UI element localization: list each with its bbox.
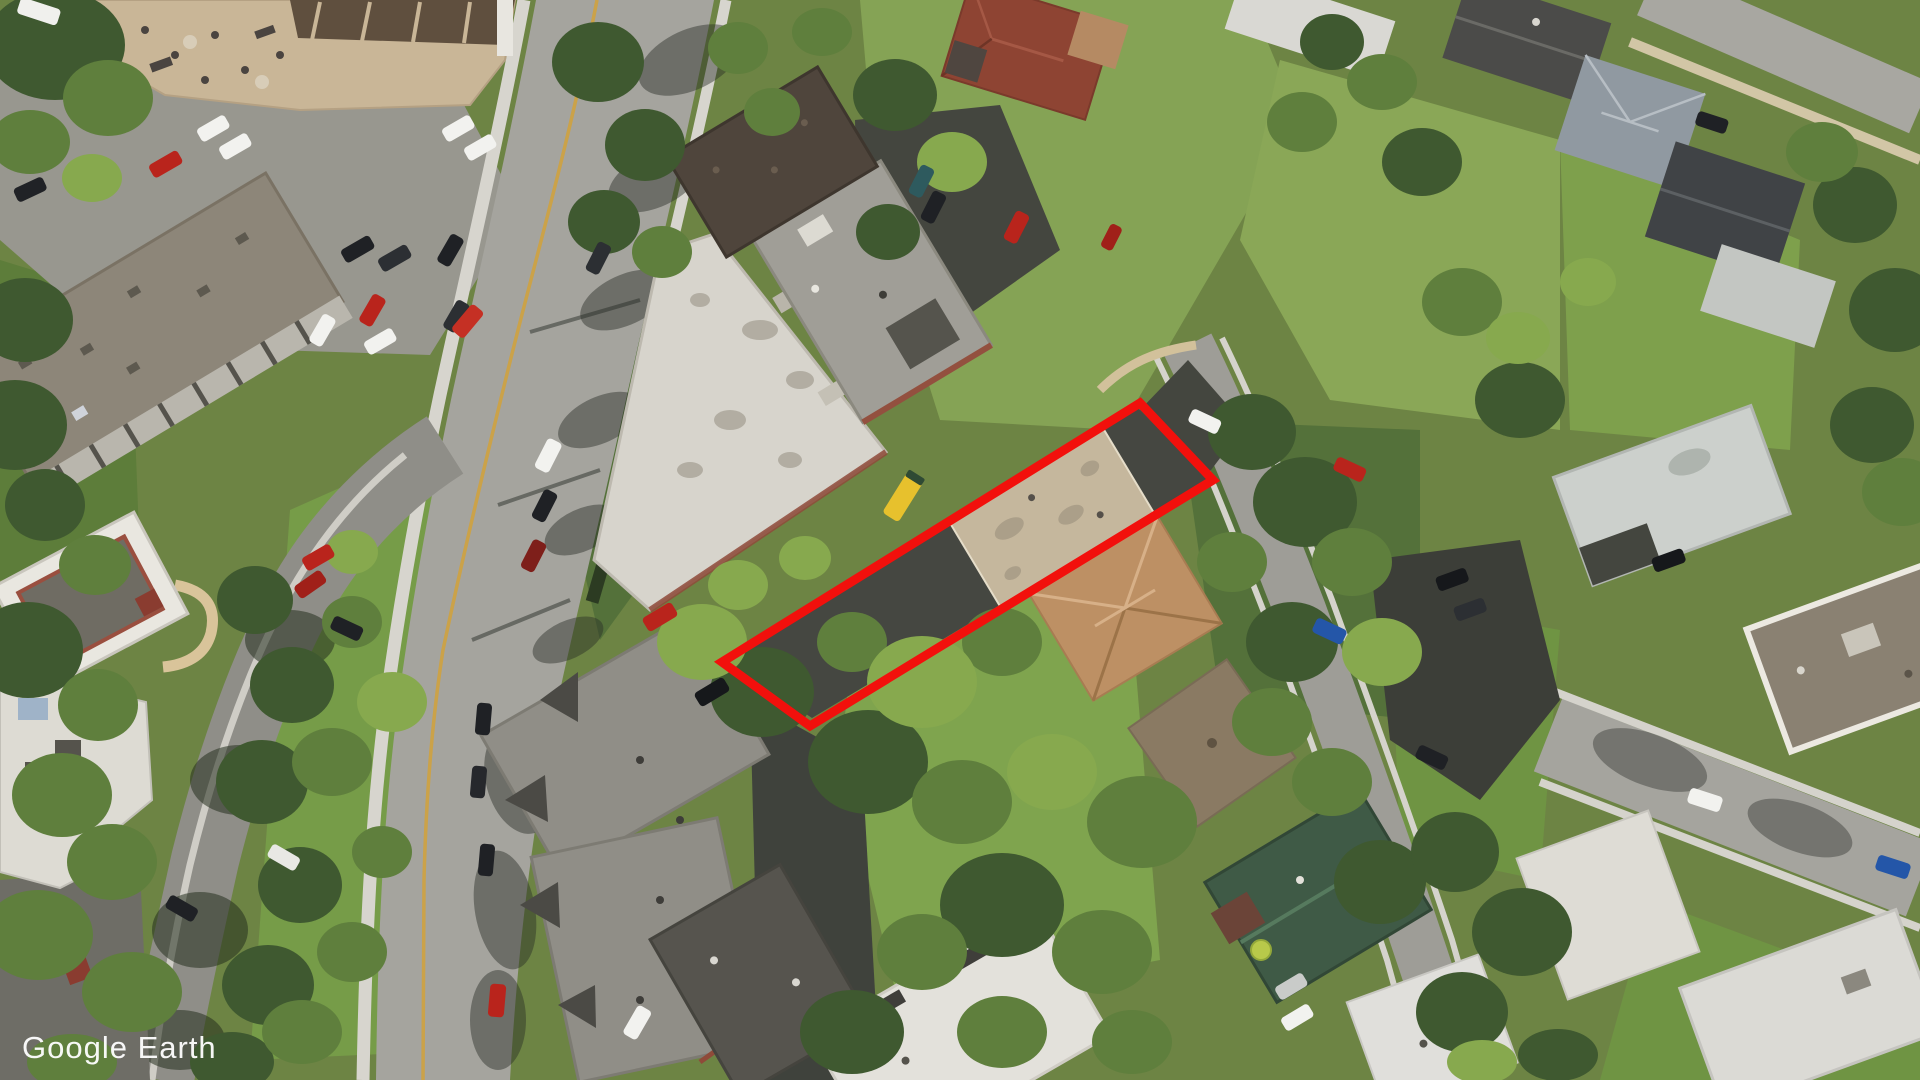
tree-canopy xyxy=(552,22,644,102)
tree-canopy xyxy=(1411,812,1499,892)
tree-canopy xyxy=(708,22,768,74)
tree-canopy xyxy=(877,914,967,990)
tree-canopy xyxy=(912,760,1012,844)
car xyxy=(470,765,488,798)
rooftop-wall xyxy=(497,0,513,56)
tree-canopy xyxy=(708,560,768,610)
tree-canopy xyxy=(1052,910,1152,994)
tree-canopy xyxy=(262,1000,342,1064)
patio-umbrella xyxy=(1251,940,1271,960)
tree-canopy xyxy=(62,154,122,202)
tree-canopy xyxy=(5,469,85,541)
tree-canopy xyxy=(853,59,937,131)
car xyxy=(478,843,496,876)
car xyxy=(488,983,507,1017)
tree-canopy xyxy=(1007,734,1097,810)
tree-canopy xyxy=(1312,528,1392,596)
tree-canopy xyxy=(322,596,382,648)
tree-canopy xyxy=(962,608,1042,676)
tree-canopy xyxy=(800,990,904,1074)
tree-canopy xyxy=(1197,532,1267,592)
tree-canopy xyxy=(1560,258,1616,306)
tree-canopy xyxy=(82,952,182,1032)
tree-canopy xyxy=(357,672,427,732)
tree-canopy xyxy=(1382,128,1462,196)
patio-item xyxy=(201,76,209,84)
tree-canopy xyxy=(1208,394,1296,470)
tree-canopy xyxy=(1830,387,1914,463)
tree-canopy xyxy=(63,60,153,136)
patio-umbrella xyxy=(255,75,269,89)
tree-canopy xyxy=(1300,14,1364,70)
patio-item xyxy=(171,51,179,59)
satellite-imagery: Google Earth xyxy=(0,0,1920,1080)
tree-canopy xyxy=(779,536,831,580)
rooftop-panel xyxy=(18,698,48,720)
patio-umbrella xyxy=(183,35,197,49)
google-earth-view: Google Earth xyxy=(0,0,1920,1080)
tree-canopy xyxy=(1087,776,1197,868)
google-earth-watermark: Google Earth xyxy=(22,1030,217,1065)
tree-canopy xyxy=(59,535,131,595)
patio-item xyxy=(276,51,284,59)
tree-canopy xyxy=(292,728,372,796)
tree-canopy xyxy=(217,566,293,634)
tree-canopy xyxy=(250,647,334,723)
dark-roof-section xyxy=(290,0,515,45)
tree-canopy xyxy=(1518,1029,1598,1080)
tree-canopy xyxy=(1292,748,1372,816)
tree-canopy xyxy=(1246,602,1338,682)
car xyxy=(475,702,493,735)
tree-canopy xyxy=(1342,618,1422,686)
tree-canopy xyxy=(1232,688,1312,756)
tree-canopy xyxy=(1472,888,1572,976)
tree-canopy xyxy=(957,996,1047,1068)
tree-canopy xyxy=(1486,312,1550,364)
tree-canopy xyxy=(1786,122,1858,182)
tree-canopy xyxy=(326,530,378,574)
tree-canopy xyxy=(744,88,800,136)
tree-canopy xyxy=(1347,54,1417,110)
tree-canopy xyxy=(58,669,138,741)
patio-item xyxy=(141,26,149,34)
tree-canopy xyxy=(1092,1010,1172,1074)
tree-canopy xyxy=(12,753,112,837)
tree-canopy xyxy=(1475,362,1565,438)
tree-canopy xyxy=(352,826,412,878)
tree-canopy xyxy=(856,204,920,260)
tree-canopy xyxy=(632,226,692,278)
patio-item xyxy=(241,66,249,74)
tree-canopy xyxy=(1416,972,1508,1052)
tree-canopy xyxy=(317,922,387,982)
tree-canopy xyxy=(1267,92,1337,152)
tree-canopy xyxy=(67,824,157,900)
chimney xyxy=(1296,876,1304,884)
tree-canopy xyxy=(792,8,852,56)
tree-canopy xyxy=(605,109,685,181)
patio-item xyxy=(211,31,219,39)
